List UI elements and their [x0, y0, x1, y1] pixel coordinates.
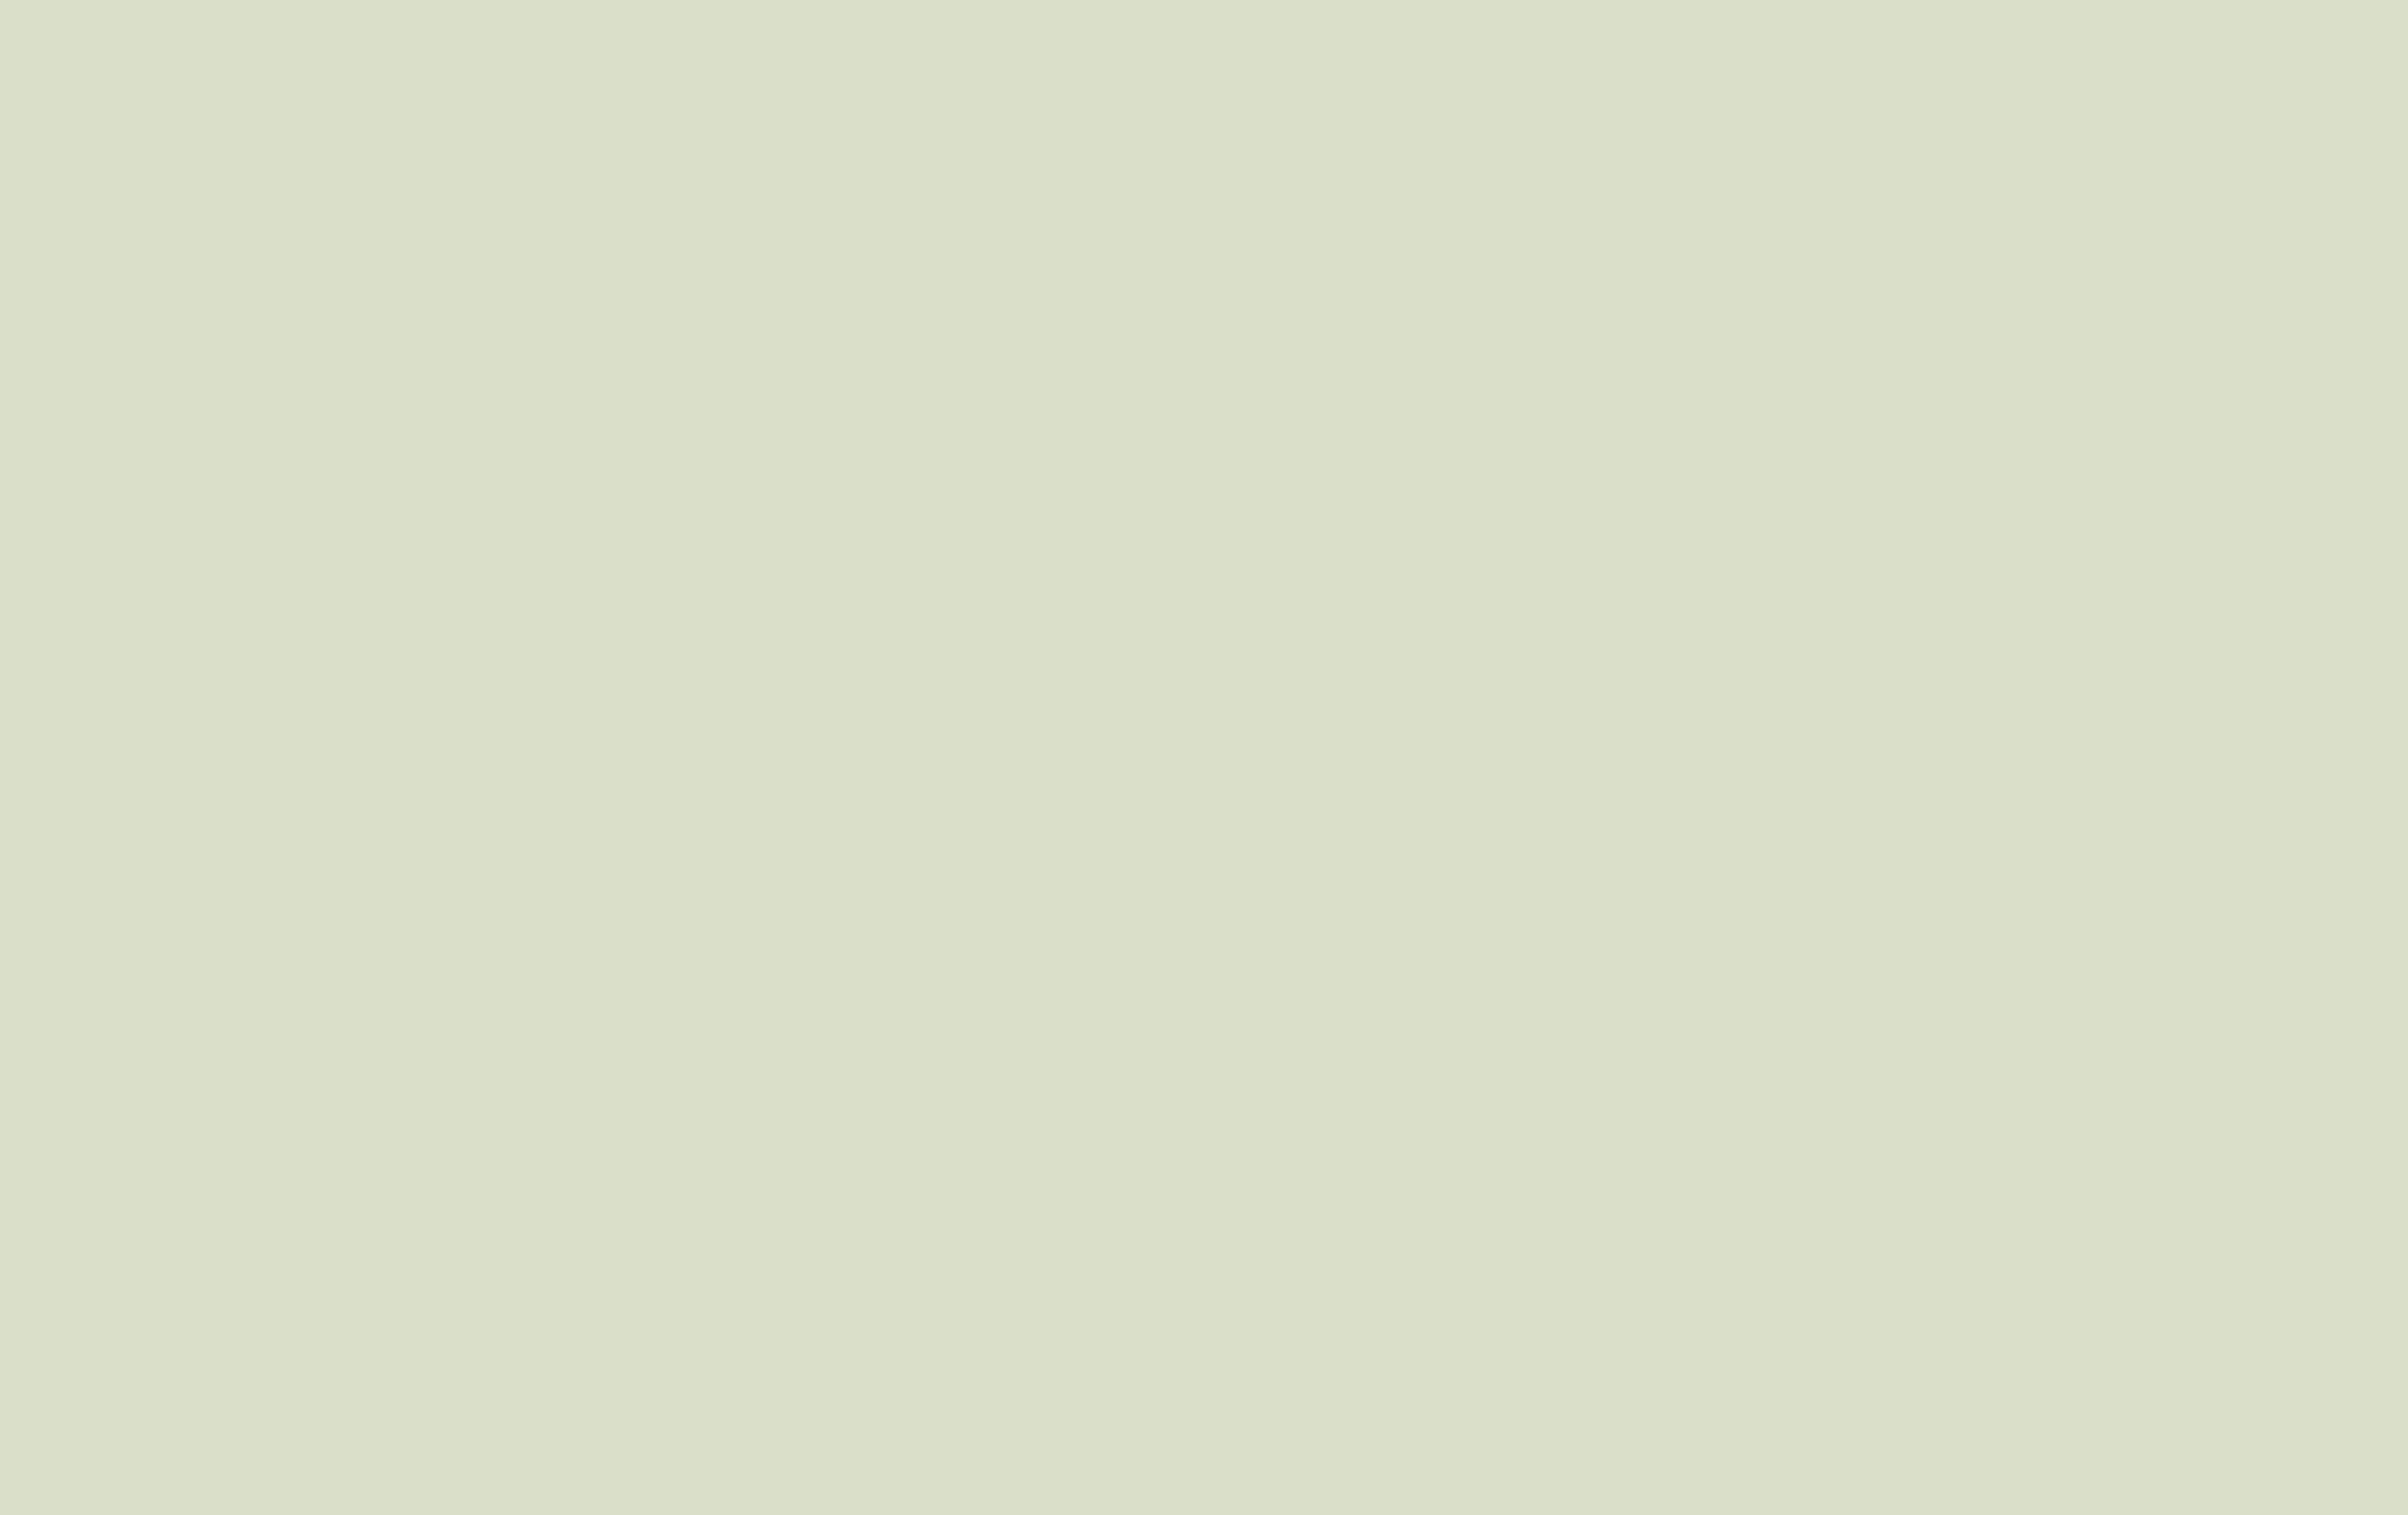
site-plan-map [0, 0, 2408, 1515]
map-canvas [0, 0, 2408, 1515]
